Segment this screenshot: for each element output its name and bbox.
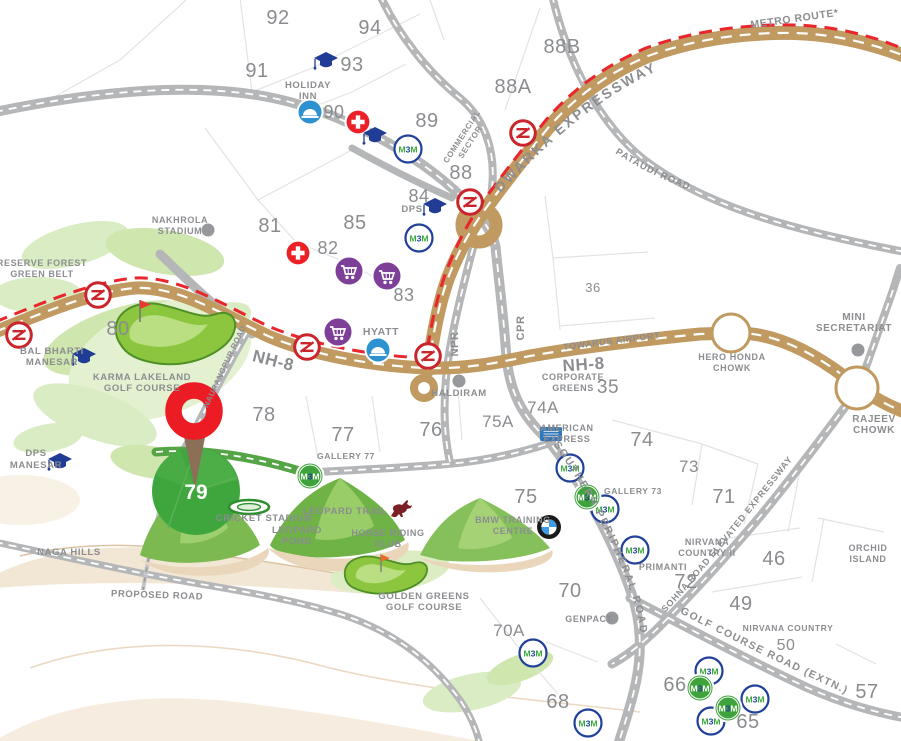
label-golden-greens-golf-course: GOLDEN GREENSGOLF COURSE bbox=[378, 591, 469, 613]
sector-label-75A: 75A bbox=[482, 412, 514, 431]
label-reserve-forest: RESERVE FORESTGREEN BELT bbox=[0, 258, 87, 279]
sector-label-80: 80 bbox=[106, 318, 129, 340]
rajeev-chowk-junction bbox=[836, 367, 878, 409]
sector-label-46: 46 bbox=[762, 548, 785, 570]
m3m-blue-icon[interactable] bbox=[520, 640, 547, 667]
sector-label-94: 94 bbox=[358, 17, 381, 39]
dot-icon bbox=[852, 344, 865, 357]
label-nakhrola-stadium: NAKHROLASTADIUM bbox=[152, 215, 208, 236]
label-genpact: GENPACT bbox=[565, 614, 613, 624]
cart-icon[interactable] bbox=[335, 257, 364, 286]
sector-label-57: 57 bbox=[855, 681, 878, 703]
sector-label-85: 85 bbox=[343, 212, 366, 234]
sector-label-68: 68 bbox=[546, 691, 569, 713]
hotel-icon[interactable] bbox=[298, 100, 323, 125]
m3m-blue-icon[interactable] bbox=[395, 136, 422, 163]
sector-label-78: 78 bbox=[252, 404, 275, 426]
sector-label-74A: 74A bbox=[527, 398, 559, 417]
sector-label-82: 82 bbox=[317, 238, 338, 258]
metro-icon[interactable] bbox=[416, 344, 441, 369]
metro-icon[interactable] bbox=[7, 323, 32, 348]
label-hero-honda-chowk: HERO HONDACHOWK bbox=[698, 352, 766, 373]
label-dps: DPS bbox=[401, 204, 422, 215]
sector-label-77: 77 bbox=[331, 424, 354, 446]
cross-icon[interactable] bbox=[286, 241, 311, 266]
cap-icon[interactable] bbox=[314, 52, 338, 70]
sector-label-71: 71 bbox=[712, 486, 735, 508]
metro-icon[interactable] bbox=[86, 283, 111, 308]
label-leopard-trail: LEOPARD TRAIL bbox=[303, 506, 387, 517]
cross-icon[interactable] bbox=[346, 110, 371, 135]
road-label-pataudi: PATAUDI ROAD bbox=[613, 146, 692, 192]
sector-label-76: 76 bbox=[419, 419, 442, 441]
stadium-icon bbox=[229, 500, 269, 514]
label-dps-manesar: DPSMANESAR bbox=[10, 448, 62, 471]
m3m-green-icon[interactable] bbox=[297, 463, 324, 490]
label-npr: NPR bbox=[449, 331, 461, 356]
m3m-blue-icon[interactable] bbox=[742, 686, 769, 713]
sector-label-92: 92 bbox=[266, 7, 289, 29]
location-map: M3M M3M bbox=[0, 0, 901, 741]
sector-label-81: 81 bbox=[258, 215, 281, 237]
label-hyatt: HYATT bbox=[363, 326, 399, 338]
label-nh8-east: NH-8 bbox=[562, 354, 605, 376]
sector-label-70A: 70A bbox=[493, 621, 525, 640]
sector-label-89: 89 bbox=[415, 110, 438, 132]
sector-label-49: 49 bbox=[729, 593, 752, 615]
label-karma-lakeland-golf-course: KARMA LAKELANDGOLF COURSE bbox=[93, 372, 191, 394]
golden-greens-golf-green bbox=[345, 556, 427, 593]
label-american-express: AMERICANEXPRESS bbox=[540, 423, 593, 444]
label-rajeev-chowk: RAJEEVCHOWK bbox=[852, 414, 896, 436]
label-haldiram: HALDIRAM bbox=[431, 388, 486, 399]
project-sector-number: 79 bbox=[184, 481, 207, 504]
hero-honda-chowk-junction bbox=[712, 314, 750, 352]
cart-icon[interactable] bbox=[324, 318, 353, 347]
metro-icon[interactable] bbox=[511, 121, 536, 146]
label-cpr: CPR bbox=[515, 315, 527, 340]
sector-label-70: 70 bbox=[558, 580, 581, 602]
m3m-blue-icon[interactable] bbox=[406, 225, 433, 252]
sector-label-93: 93 bbox=[340, 54, 363, 76]
sector-label-91: 91 bbox=[245, 60, 268, 82]
label-nirvana-country: NIRVANA COUNTRY bbox=[743, 623, 834, 633]
svg-text:PATAUDI ROAD: PATAUDI ROAD bbox=[613, 146, 692, 192]
label-naga-hills: NAGA HILLS bbox=[37, 547, 101, 558]
label-orchid-island: ORCHIDISLAND bbox=[848, 543, 887, 564]
label-corporate-greens: CORPORATEGREENS bbox=[542, 372, 604, 393]
sector-label-84: 84 bbox=[408, 186, 429, 206]
sector-label-88B: 88B bbox=[543, 36, 580, 58]
dot-icon bbox=[453, 375, 466, 388]
dot-icon bbox=[202, 224, 215, 237]
sector-label-36: 36 bbox=[585, 280, 600, 295]
sector-label-75: 75 bbox=[514, 486, 537, 508]
sector-label-88: 88 bbox=[449, 162, 472, 184]
sector-label-66: 66 bbox=[663, 674, 686, 696]
m3m-green-icon[interactable] bbox=[687, 675, 714, 702]
label-primanti: PRIMANTI bbox=[639, 562, 687, 572]
horse-icon bbox=[391, 500, 412, 517]
label-bal-bharti-manesar: BAL BHARTIMANESAR bbox=[20, 346, 84, 368]
hotel-icon[interactable] bbox=[366, 338, 391, 363]
m3m-blue-icon[interactable] bbox=[575, 710, 602, 737]
metro-icon[interactable] bbox=[295, 335, 320, 360]
sector-label-50: 50 bbox=[777, 637, 796, 654]
sector-label-83: 83 bbox=[393, 285, 414, 305]
sector-label-88A: 88A bbox=[494, 76, 531, 98]
label-cricket-stadium: CRICKET STADIUM bbox=[216, 513, 312, 524]
label-gallery-73: GALLERY 73 bbox=[604, 486, 662, 496]
label-proposed-road: PROPOSED ROAD bbox=[111, 588, 204, 602]
metro-icon[interactable] bbox=[458, 190, 483, 215]
label-commercial-sector: COMMERCIALSECTOR bbox=[441, 109, 490, 171]
label-gallery-77: GALLERY 77 bbox=[317, 451, 375, 461]
sector-label-74: 74 bbox=[630, 429, 653, 451]
sector-label-73: 73 bbox=[679, 457, 699, 476]
sector-label-65: 65 bbox=[736, 711, 759, 733]
map-canvas: M3M M3M bbox=[0, 0, 901, 741]
sector-label-90: 90 bbox=[323, 102, 344, 122]
bottom-hills bbox=[0, 698, 480, 741]
